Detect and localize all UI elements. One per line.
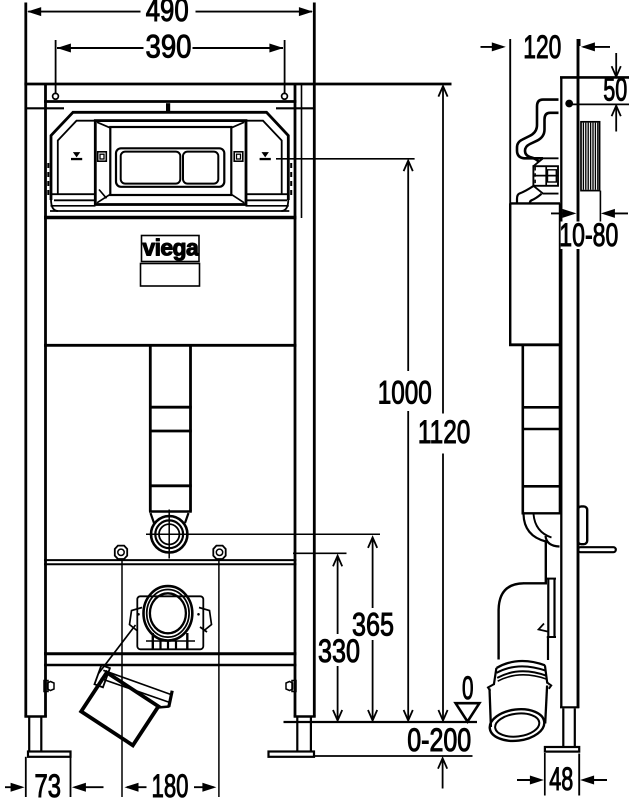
svg-text:73: 73 [35,768,62,799]
svg-text:48: 48 [549,761,573,797]
svg-text:490: 490 [146,0,189,28]
svg-text:50: 50 [603,71,627,107]
svg-text:180: 180 [152,768,189,799]
svg-text:390: 390 [146,28,192,64]
svg-text:1000: 1000 [378,375,432,411]
svg-text:1120: 1120 [418,414,470,450]
svg-text:0-200: 0-200 [407,722,471,758]
svg-text:0: 0 [462,670,474,706]
svg-text:330: 330 [318,633,360,669]
svg-text:viega: viega [142,235,199,261]
svg-text:120: 120 [523,29,561,65]
svg-text:10-80: 10-80 [559,217,618,253]
